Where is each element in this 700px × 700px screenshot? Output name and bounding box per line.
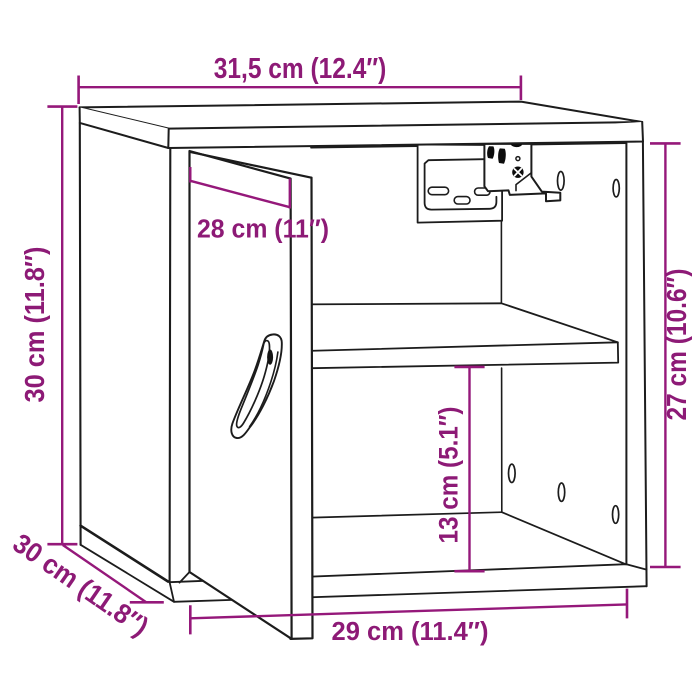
- svg-text:29 cm (11.4″): 29 cm (11.4″): [332, 618, 489, 646]
- svg-text:30 cm (11.8″): 30 cm (11.8″): [19, 247, 50, 403]
- svg-text:13 cm (5.1″): 13 cm (5.1″): [434, 407, 464, 544]
- svg-text:27 cm (10.6″): 27 cm (10.6″): [661, 269, 692, 421]
- svg-text:28 cm (11″): 28 cm (11″): [197, 216, 329, 244]
- svg-text:31,5 cm (12.4″): 31,5 cm (12.4″): [214, 53, 387, 85]
